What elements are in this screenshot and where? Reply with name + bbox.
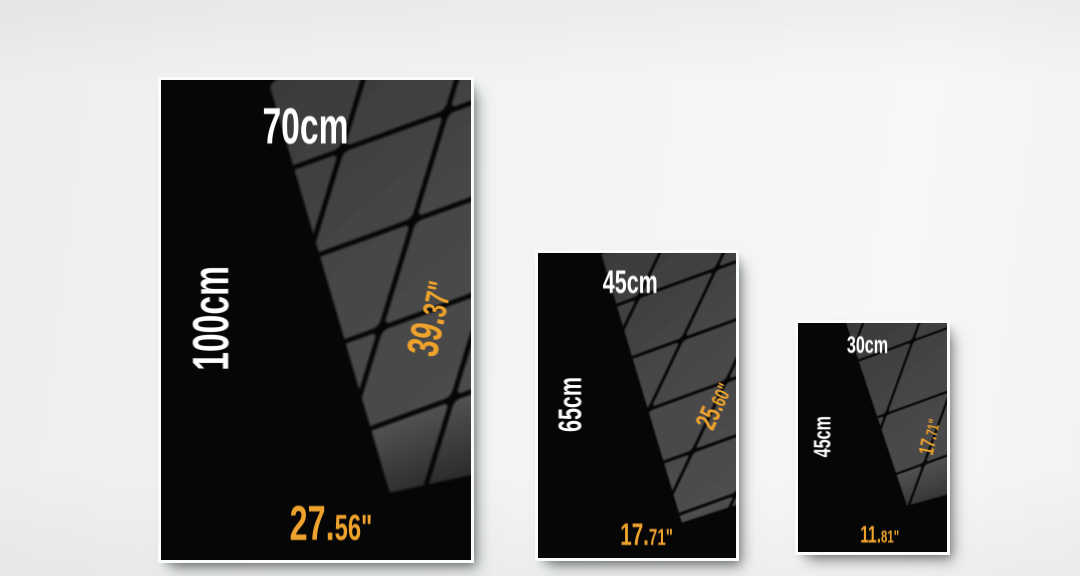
svg-text:30cm: 30cm	[847, 332, 888, 359]
svg-text:45cm: 45cm	[603, 264, 658, 301]
svg-text:65cm: 65cm	[551, 377, 588, 432]
svg-text:70cm: 70cm	[262, 98, 348, 155]
svg-text:45cm: 45cm	[809, 416, 836, 457]
svg-text:100cm: 100cm	[183, 266, 240, 371]
